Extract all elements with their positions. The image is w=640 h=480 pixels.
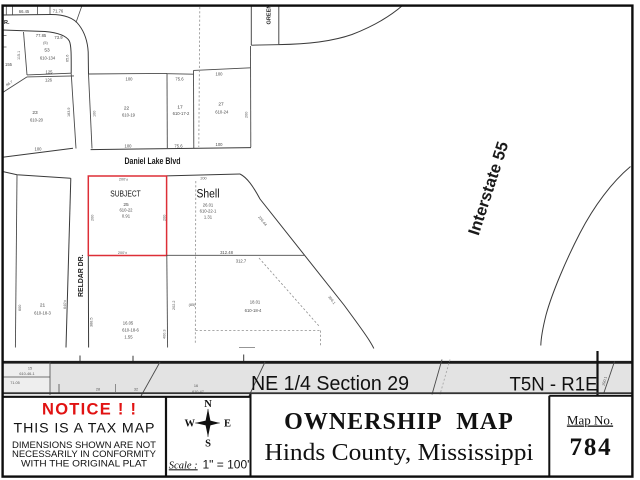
svg-text:312.7: 312.7 bbox=[236, 259, 247, 264]
svg-text:1" = 100': 1" = 100' bbox=[203, 457, 250, 471]
svg-text:115.1: 115.1 bbox=[17, 51, 21, 60]
svg-text:183.9: 183.9 bbox=[67, 107, 71, 117]
svg-text:22: 22 bbox=[124, 106, 130, 112]
svg-text:65.6: 65.6 bbox=[66, 55, 70, 62]
svg-text:200: 200 bbox=[91, 215, 95, 221]
svg-text:28: 28 bbox=[96, 388, 100, 392]
svg-text:E: E bbox=[224, 419, 231, 430]
svg-text:1.55: 1.55 bbox=[124, 335, 133, 340]
svg-text:0.91: 0.91 bbox=[122, 214, 131, 219]
svg-text:SUBJECT: SUBJECT bbox=[110, 190, 141, 199]
svg-text:GREEN: GREEN bbox=[267, 5, 273, 25]
svg-text:610-18-6: 610-18-6 bbox=[122, 328, 139, 333]
svg-text:312.48: 312.48 bbox=[220, 250, 233, 255]
svg-text:17: 17 bbox=[177, 105, 183, 111]
svg-text:21: 21 bbox=[40, 303, 46, 309]
svg-text:66.45: 66.45 bbox=[19, 9, 30, 14]
svg-text:Daniel Lake Blvd: Daniel Lake Blvd bbox=[125, 156, 181, 166]
svg-text:610-18-3: 610-18-3 bbox=[34, 310, 51, 315]
svg-text:200: 200 bbox=[200, 177, 206, 181]
svg-text:23: 23 bbox=[32, 110, 38, 116]
svg-text:155: 155 bbox=[5, 62, 13, 67]
svg-text:NE 1/4 Section 29: NE 1/4 Section 29 bbox=[251, 373, 409, 395]
svg-text:100: 100 bbox=[216, 71, 224, 76]
svg-text:Shell: Shell bbox=[197, 189, 220, 201]
svg-text:N: N bbox=[204, 399, 212, 410]
svg-text:200'±: 200'± bbox=[118, 251, 127, 255]
svg-text:200: 200 bbox=[163, 215, 167, 221]
svg-text:610-46-1: 610-46-1 bbox=[19, 372, 34, 376]
svg-text:71.05: 71.05 bbox=[10, 381, 20, 385]
svg-text:640'±: 640'± bbox=[63, 300, 67, 309]
svg-text:75.6: 75.6 bbox=[175, 77, 184, 82]
svg-text:784: 784 bbox=[570, 434, 613, 461]
svg-text:W: W bbox=[185, 419, 196, 430]
svg-text:53: 53 bbox=[44, 48, 50, 54]
svg-text:WITH THE ORIGINAL PLAT: WITH THE ORIGINAL PLAT bbox=[21, 458, 147, 469]
svg-text:610-22: 610-22 bbox=[119, 208, 133, 213]
svg-text:18.01: 18.01 bbox=[250, 300, 261, 305]
svg-text:610-17-2: 610-17-2 bbox=[173, 111, 190, 116]
svg-text:100: 100 bbox=[126, 77, 134, 82]
svg-text:Scale :: Scale : bbox=[169, 460, 198, 471]
svg-text:Hinds County, Mississippi: Hinds County, Mississippi bbox=[265, 440, 534, 466]
svg-text:610-20: 610-20 bbox=[30, 118, 44, 123]
svg-text:NOTICE ! !: NOTICE ! ! bbox=[42, 400, 136, 418]
svg-text:15: 15 bbox=[28, 367, 32, 371]
svg-text:(85): (85) bbox=[189, 303, 196, 307]
svg-text:125: 125 bbox=[46, 70, 54, 75]
svg-text:Map No.: Map No. bbox=[567, 413, 613, 428]
svg-text:71.76: 71.76 bbox=[53, 9, 64, 14]
svg-text:16.05: 16.05 bbox=[123, 321, 134, 326]
svg-text:610-22-1: 610-22-1 bbox=[200, 209, 217, 214]
svg-text:73.9: 73.9 bbox=[54, 35, 63, 40]
svg-text:26.01: 26.01 bbox=[203, 203, 214, 208]
svg-text:(5): (5) bbox=[43, 41, 48, 45]
svg-text:100: 100 bbox=[93, 111, 97, 117]
svg-text:610-134: 610-134 bbox=[40, 56, 56, 61]
svg-text:126: 126 bbox=[45, 78, 53, 83]
svg-text:600: 600 bbox=[18, 305, 22, 311]
svg-text:610-24: 610-24 bbox=[215, 110, 229, 115]
svg-text:200: 200 bbox=[245, 112, 249, 118]
svg-text:T5N - R1E: T5N - R1E bbox=[510, 374, 598, 396]
svg-text:32: 32 bbox=[134, 388, 138, 392]
svg-text:100: 100 bbox=[35, 147, 43, 152]
svg-text:610-19: 610-19 bbox=[122, 113, 136, 118]
svg-text:27: 27 bbox=[218, 102, 224, 108]
svg-text:610-18-4: 610-18-4 bbox=[245, 308, 262, 313]
svg-text:200'±: 200'± bbox=[119, 177, 128, 181]
svg-text:RELDAR DR.: RELDAR DR. bbox=[78, 254, 85, 297]
svg-text:77.85: 77.85 bbox=[36, 33, 47, 38]
svg-text:100: 100 bbox=[216, 142, 224, 147]
svg-text:202.2: 202.2 bbox=[172, 300, 176, 310]
svg-text:R.: R. bbox=[4, 20, 10, 26]
svg-text:OWNERSHIP MAP: OWNERSHIP MAP bbox=[284, 409, 514, 435]
svg-text:1.31: 1.31 bbox=[204, 215, 213, 220]
svg-text:THIS IS A TAX MAP: THIS IS A TAX MAP bbox=[14, 420, 155, 436]
svg-text:75.6: 75.6 bbox=[174, 144, 183, 149]
svg-text:16: 16 bbox=[194, 384, 198, 388]
svg-text:388.5: 388.5 bbox=[90, 317, 94, 327]
svg-text:400.3: 400.3 bbox=[163, 329, 167, 339]
svg-text:100: 100 bbox=[125, 144, 133, 149]
svg-text:S: S bbox=[205, 439, 211, 450]
